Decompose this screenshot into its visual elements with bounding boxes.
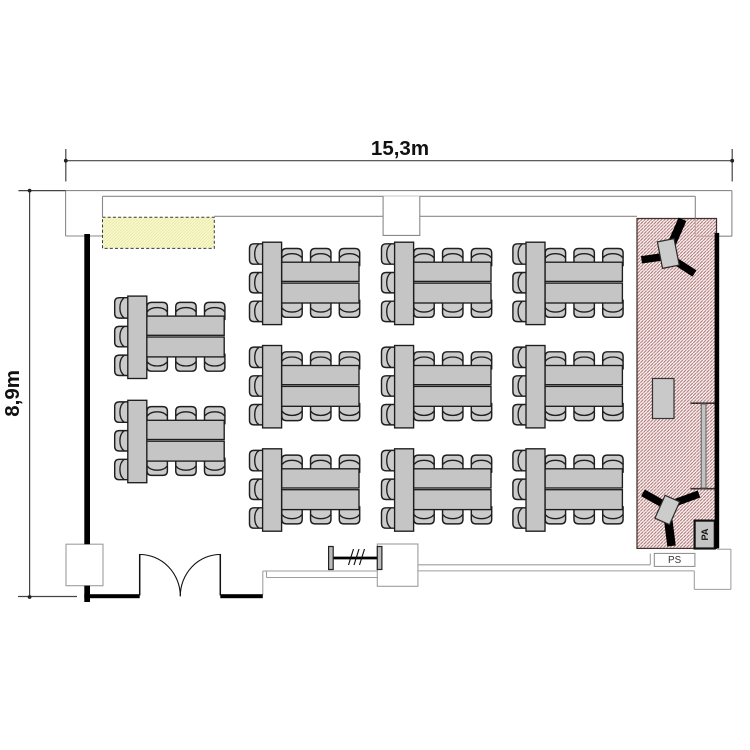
svg-text:15,3m: 15,3m	[371, 137, 429, 160]
svg-text:8,9m: 8,9m	[1, 370, 24, 417]
svg-text:PA: PA	[700, 528, 710, 540]
svg-text:PS: PS	[668, 555, 682, 566]
